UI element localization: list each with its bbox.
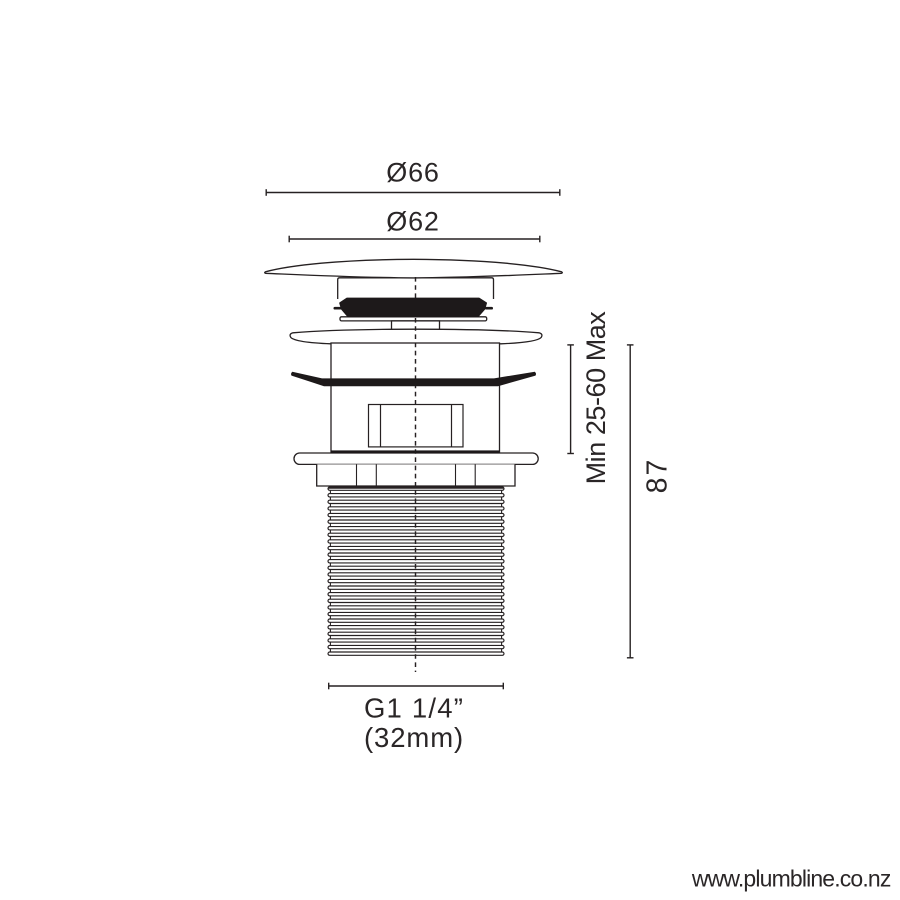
svg-text:(32mm): (32mm) [364, 722, 464, 753]
svg-text:www.plumbline.co.nz: www.plumbline.co.nz [691, 866, 891, 892]
svg-text:Min 25-60 Max: Min 25-60 Max [581, 311, 611, 485]
svg-text:Ø66: Ø66 [386, 158, 439, 188]
svg-text:87: 87 [642, 458, 674, 494]
svg-text:Ø62: Ø62 [386, 207, 439, 237]
svg-text:G1 1/4”: G1 1/4” [364, 693, 464, 724]
